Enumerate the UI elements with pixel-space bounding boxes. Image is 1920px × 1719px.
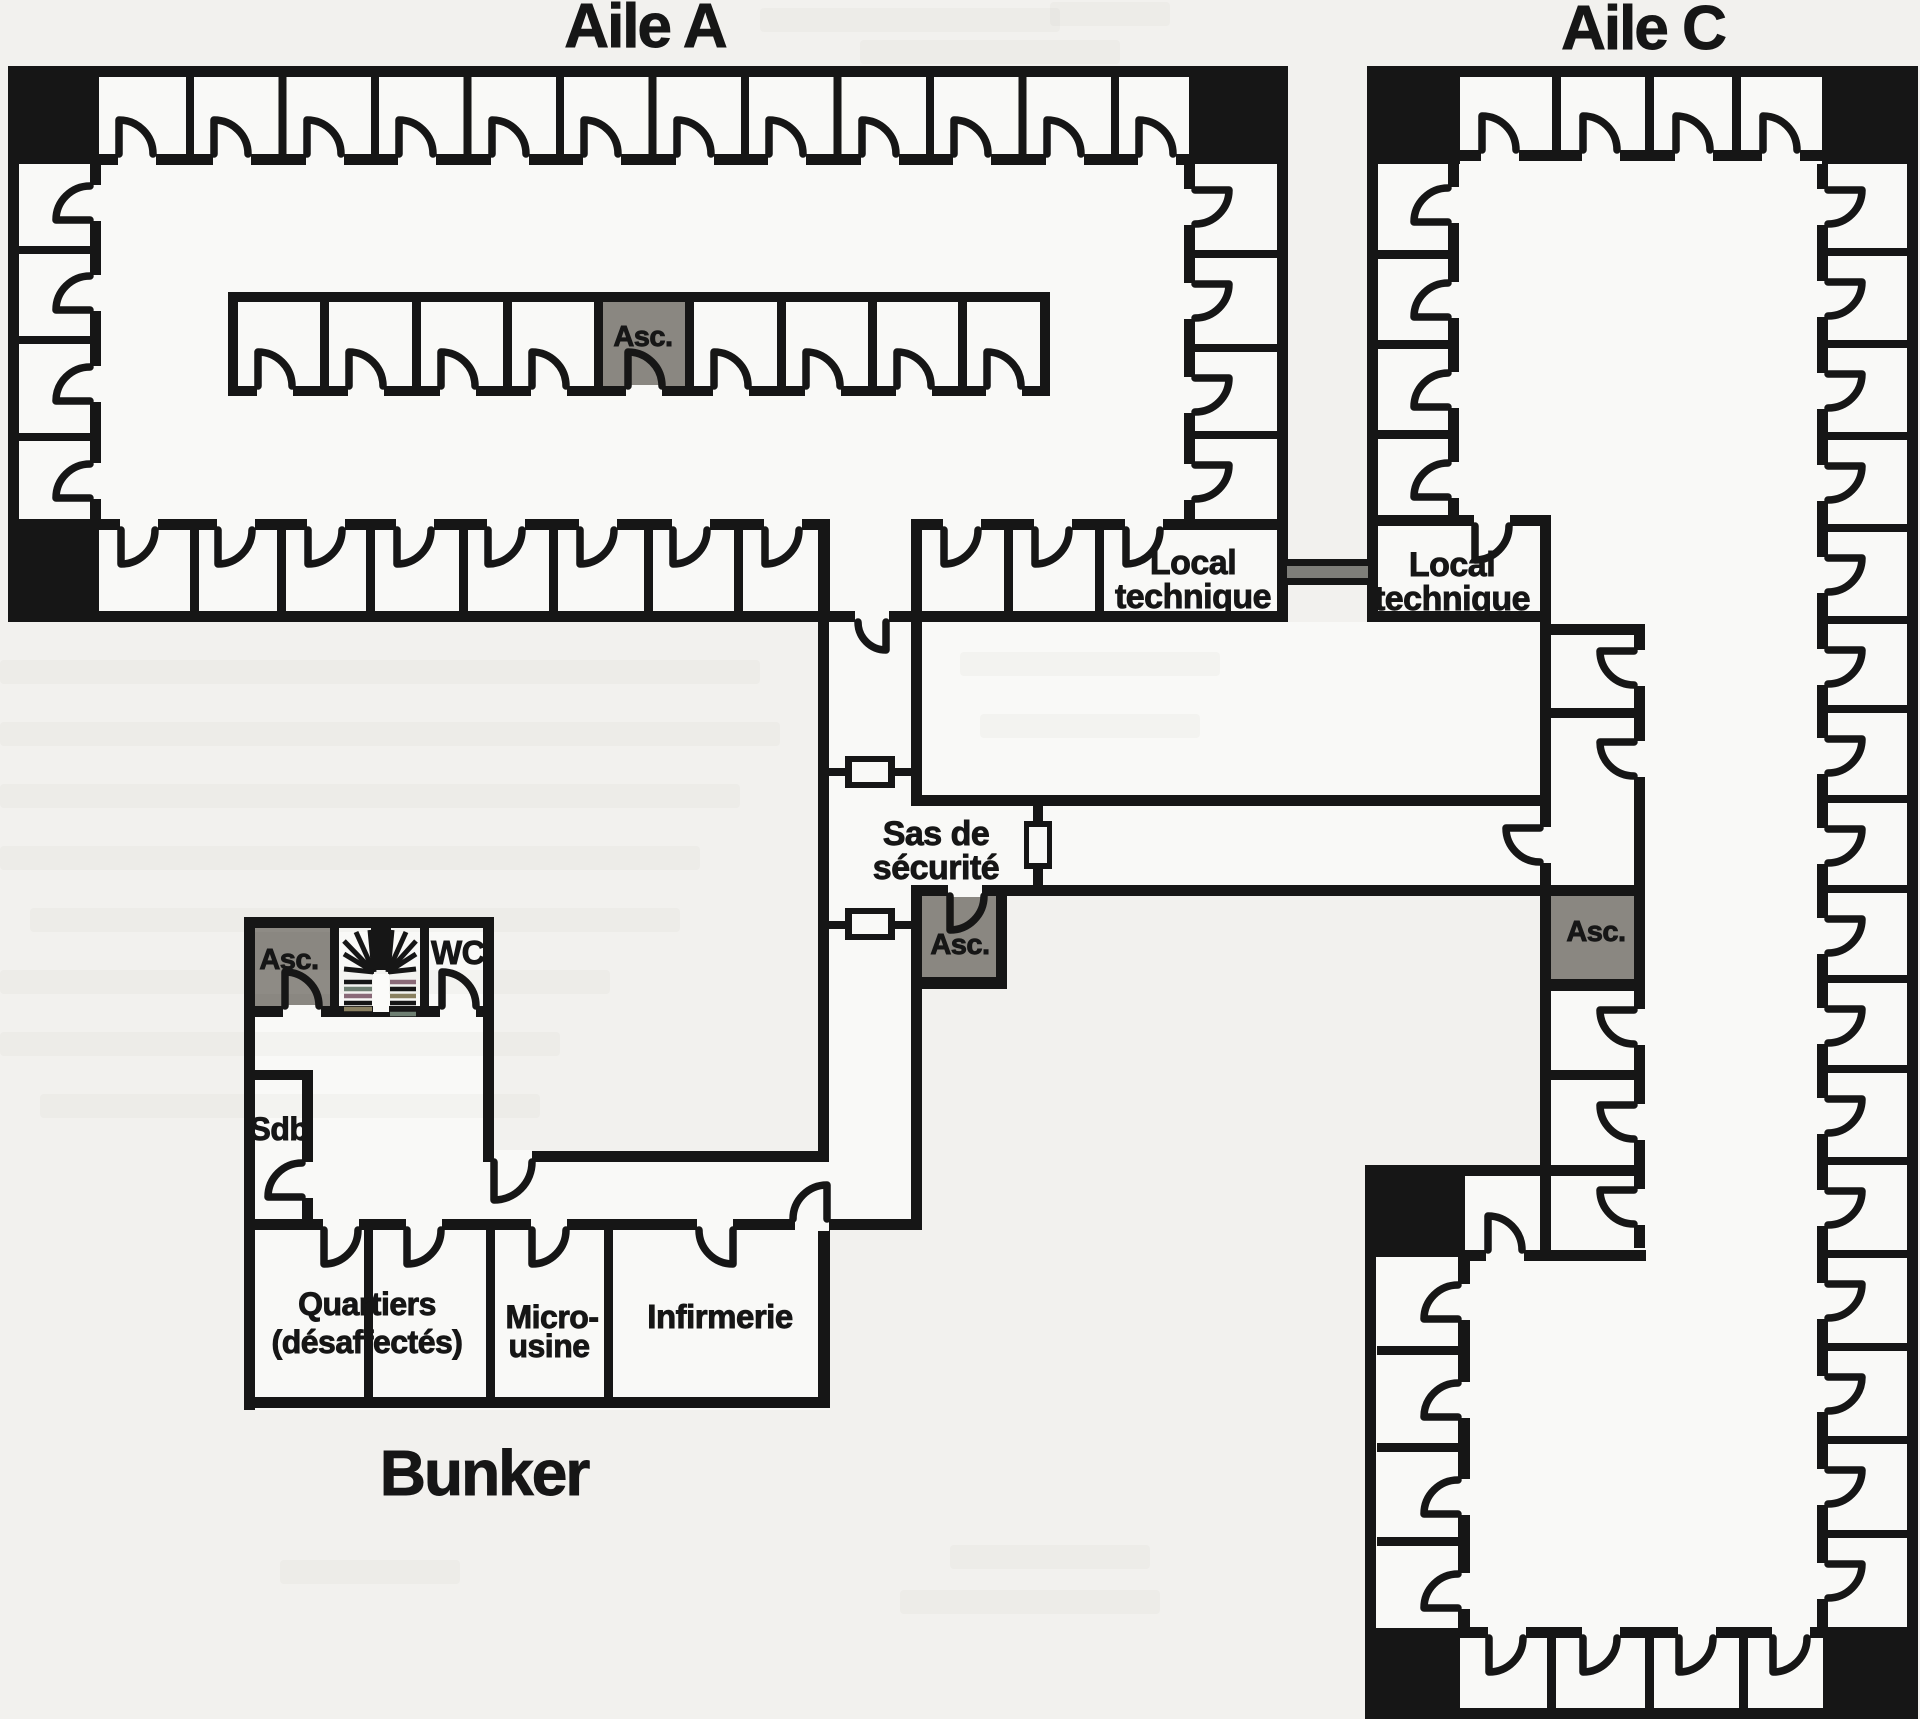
svg-text:technique: technique	[1374, 580, 1530, 618]
svg-text:Sas de: Sas de	[883, 815, 990, 853]
svg-text:Aile C: Aile C	[1561, 0, 1726, 63]
svg-text:usine: usine	[508, 1328, 589, 1364]
svg-text:Bunker: Bunker	[380, 1437, 590, 1509]
svg-text:Quartiers: Quartiers	[298, 1286, 436, 1322]
svg-text:Asc.: Asc.	[613, 321, 672, 353]
svg-text:Asc.: Asc.	[259, 944, 318, 976]
svg-text:sécurité: sécurité	[873, 849, 999, 887]
svg-text:Sdb: Sdb	[250, 1111, 309, 1147]
svg-text:technique: technique	[1115, 578, 1271, 616]
svg-text:Infirmerie: Infirmerie	[647, 1298, 793, 1335]
svg-text:(désaffectés): (désaffectés)	[272, 1324, 463, 1360]
svg-text:WC: WC	[431, 934, 485, 971]
svg-text:Local: Local	[1409, 546, 1495, 584]
svg-text:Aile A: Aile A	[564, 0, 727, 61]
svg-text:Local: Local	[1150, 544, 1236, 582]
svg-text:Asc.: Asc.	[1566, 916, 1625, 948]
svg-text:Asc.: Asc.	[930, 929, 989, 961]
